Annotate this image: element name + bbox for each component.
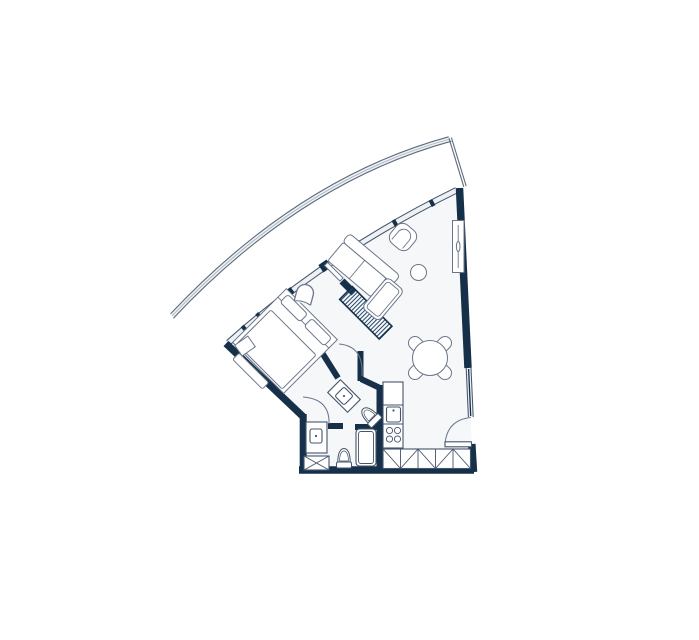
radiator — [453, 221, 465, 273]
kitchen-sink — [387, 407, 401, 422]
shower — [356, 429, 376, 466]
bathroom2-vanity — [306, 422, 327, 453]
kitchen-counter — [383, 382, 403, 448]
wall-right-lower — [472, 444, 474, 472]
facade-return-line-2 — [451, 138, 466, 187]
washing-machine — [304, 456, 329, 470]
dining-set — [406, 334, 454, 382]
entry-door-leaf — [445, 442, 472, 447]
facade-return-line — [449, 138, 464, 187]
floor-plan — [0, 0, 699, 640]
dining-table — [413, 341, 448, 376]
side-table — [411, 265, 427, 281]
entry-closet — [383, 449, 471, 469]
floor-plan-page — [0, 0, 699, 640]
